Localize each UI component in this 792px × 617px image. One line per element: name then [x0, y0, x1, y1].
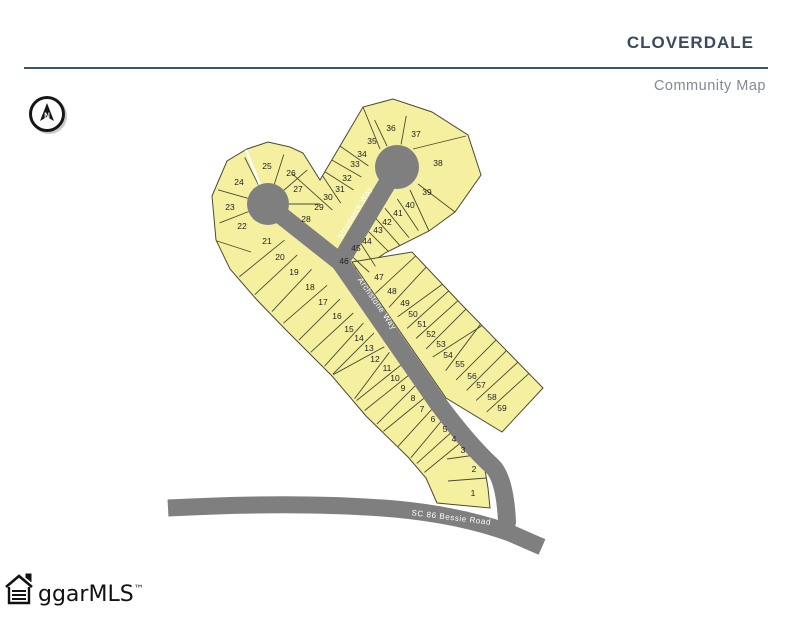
trademark-symbol: ™: [134, 584, 144, 595]
lot-25-number: 25: [262, 161, 272, 171]
lot-15-number: 15: [344, 324, 354, 334]
lot-6-number: 6: [431, 414, 436, 424]
lot-55-number: 55: [455, 359, 465, 369]
lot-37-number: 37: [411, 129, 421, 139]
lot-57-number: 57: [476, 380, 486, 390]
lot-5-number: 5: [443, 424, 448, 434]
lot-20-number: 20: [275, 252, 285, 262]
lot-17-number: 17: [318, 297, 328, 307]
lot-19-number: 19: [289, 267, 299, 277]
lot-24-number: 24: [234, 177, 244, 187]
community-map-svg: Strudwick WayArchstone WaySC 86 Bessie R…: [0, 0, 792, 612]
lot-11-number: 11: [383, 363, 392, 373]
lot-29-number: 29: [314, 202, 324, 212]
mls-logo-text: ggarMLS™: [38, 584, 144, 606]
lot-12-number: 12: [370, 354, 380, 364]
lot-30-number: 30: [323, 192, 333, 202]
lot-26-number: 26: [286, 168, 296, 178]
lot-52-number: 52: [426, 329, 436, 339]
lot-14-number: 14: [354, 333, 364, 343]
lot-54-number: 54: [443, 350, 453, 360]
lot-18-number: 18: [305, 282, 315, 292]
lot-44-number: 44: [362, 236, 372, 246]
lot-9-number: 9: [401, 383, 406, 393]
lot-32-number: 32: [342, 173, 352, 183]
lot-47-number: 47: [374, 272, 384, 282]
lot-27-number: 27: [293, 184, 303, 194]
lot-35-number: 35: [367, 136, 377, 146]
lot-34-number: 34: [357, 149, 367, 159]
lot-50-number: 50: [408, 309, 418, 319]
lot-16-number: 16: [332, 311, 342, 321]
lot-49-number: 49: [400, 298, 410, 308]
lot-23-number: 23: [225, 202, 235, 212]
lot-8-number: 8: [411, 393, 416, 403]
lot-38-number: 38: [433, 158, 443, 168]
lot-1-number: 1: [471, 488, 476, 498]
lot-21-number: 21: [262, 236, 272, 246]
lot-28-number: 28: [301, 214, 311, 224]
cul-de-sac-1: [247, 183, 289, 225]
lot-48-number: 48: [387, 286, 397, 296]
lot-39-number: 39: [422, 187, 432, 197]
lot-13-number: 13: [364, 343, 374, 353]
lot-59-number: 59: [497, 403, 507, 413]
lot-7-number: 7: [420, 404, 425, 414]
lot-3-number: 3: [461, 445, 466, 455]
cul-de-sac-2: [375, 145, 419, 189]
lot-31-number: 31: [335, 184, 345, 194]
community-map: Strudwick WayArchstone WaySC 86 Bessie R…: [0, 0, 792, 612]
lot-42-number: 42: [382, 217, 392, 227]
lot-53-number: 53: [436, 339, 446, 349]
lot-41-number: 41: [393, 208, 403, 218]
lot-40-number: 40: [405, 200, 415, 210]
lot-58-number: 58: [487, 392, 497, 402]
lot-46-number: 46: [339, 256, 349, 266]
lot-51-number: 51: [417, 319, 427, 329]
mls-logo: ggarMLS™: [2, 572, 144, 606]
lot-33-number: 33: [350, 159, 360, 169]
lot-43-number: 43: [373, 225, 383, 235]
lot-45-number: 45: [351, 243, 361, 253]
lot-4-number: 4: [452, 434, 457, 444]
house-icon: [2, 572, 40, 606]
lot-36-number: 36: [386, 123, 396, 133]
lot-22-number: 22: [237, 221, 247, 231]
lot-2-number: 2: [472, 464, 477, 474]
lot-10-number: 10: [390, 373, 400, 383]
